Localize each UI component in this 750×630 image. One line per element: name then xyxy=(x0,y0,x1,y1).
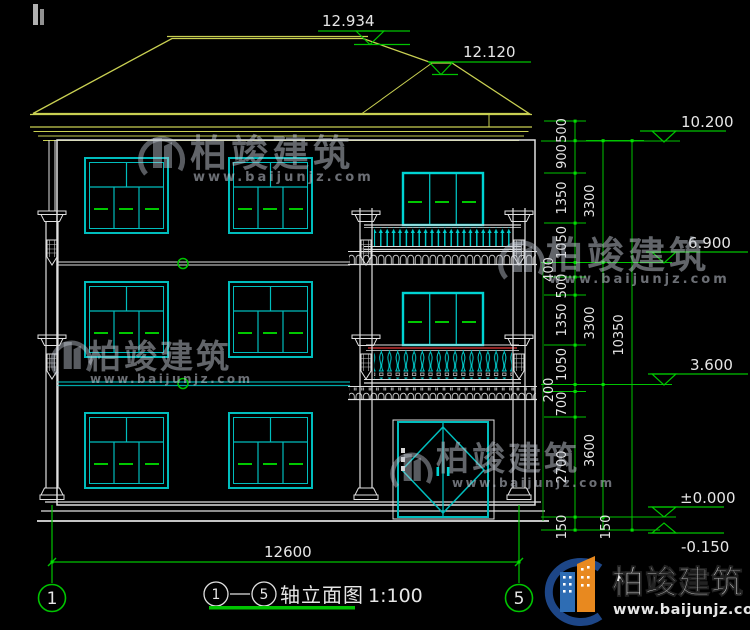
elevation-marker-eave xyxy=(640,131,726,142)
title-scale: 1:100 xyxy=(368,585,423,607)
segment-dim-label: 500 xyxy=(555,118,570,143)
axis-bubble-label: 5 xyxy=(514,589,525,609)
cornice-dentils xyxy=(349,253,536,265)
elevation-label: 12.934 xyxy=(322,12,375,30)
footer-logo: 柏竣建筑 www.baijunjz.com xyxy=(549,556,750,622)
footer-brand: 柏竣建筑 xyxy=(612,563,744,601)
watermark-url: www.baijunjz.com xyxy=(549,272,730,287)
elevation-label: -0.150 xyxy=(681,538,729,556)
segment-dim-label: 700 xyxy=(555,392,570,417)
window xyxy=(85,158,168,233)
title-axis-start: 1 xyxy=(212,587,221,603)
elevation-marker-ground xyxy=(648,507,724,517)
watermark-brand: 柏竣建筑 xyxy=(546,234,710,277)
overall-width-label: 12600 xyxy=(264,543,312,561)
drawing-title: 1 5 轴立面图 1:100 xyxy=(204,582,423,610)
axis-marker-circle xyxy=(178,259,188,269)
elevation-marker-base xyxy=(648,523,724,533)
elevation-marker-ridge-main xyxy=(318,31,410,45)
watermark-fragment-icon xyxy=(33,4,44,25)
roof-hip-line xyxy=(362,63,432,114)
balcony-second-floor xyxy=(348,293,537,400)
roof xyxy=(30,37,532,141)
balcony-vase-balusters xyxy=(374,350,512,379)
balcony-balusters xyxy=(374,228,512,247)
watermark-brand: 柏竣建筑 xyxy=(436,439,580,478)
span-dim-label: 3600 xyxy=(583,434,598,467)
balcony-sliding-door xyxy=(403,173,483,225)
watermark: 柏竣建筑 www.baijunjz.com xyxy=(53,337,253,386)
segment-dim-label: 1350 xyxy=(555,181,570,214)
window xyxy=(229,282,312,357)
title-axis-end: 5 xyxy=(260,587,269,603)
footer-url: www.baijunjz.com xyxy=(613,602,750,618)
door-hinge xyxy=(401,448,405,453)
pilaster-left xyxy=(38,140,66,500)
watermark-brand: 柏竣建筑 xyxy=(190,132,354,175)
total-dim-label: 10350 xyxy=(612,314,627,355)
segment-dim-label: 150 xyxy=(555,515,570,540)
watermark-url: www.baijunjz.com xyxy=(452,476,615,490)
elevation-label: 10.200 xyxy=(681,113,734,131)
window xyxy=(229,413,312,488)
watermark: 柏竣建筑 www.baijunjz.com xyxy=(393,439,615,490)
elevation-label: 3.600 xyxy=(690,356,733,374)
title-underline xyxy=(209,606,355,610)
elevation-marker-second xyxy=(648,374,748,385)
logo-building-orange xyxy=(577,556,595,612)
watermark-url: www.baijunjz.com xyxy=(193,170,374,185)
elevation-marker-ridge-wing xyxy=(428,62,531,75)
elevation-label: 12.120 xyxy=(463,43,516,61)
elevation-label: ±0.000 xyxy=(680,489,736,507)
watermark-brand: 柏竣建筑 xyxy=(88,337,232,376)
logo-building-blue xyxy=(560,572,575,612)
title-text: 轴立面图 xyxy=(280,583,364,607)
span-dim-label: 3300 xyxy=(583,184,598,217)
balcony-sliding-door xyxy=(403,293,483,345)
segment-dim-label: 1350 xyxy=(555,303,570,336)
balcony-third-floor xyxy=(348,173,537,265)
elevation-drawing: 500 900 1350 1050 400 500 1350 1050 200 … xyxy=(0,0,750,630)
cornice-dentils xyxy=(349,388,536,400)
windows xyxy=(85,158,312,488)
watermark-url: www.baijunjz.com xyxy=(90,372,253,386)
span-dim-label: 3300 xyxy=(583,306,598,339)
span-dim-label: 150 xyxy=(599,515,614,540)
window xyxy=(85,413,168,488)
axis-bubble-label: 1 xyxy=(47,589,58,609)
segment-dim-label: 900 xyxy=(555,144,570,169)
segment-dim-label: 1050 xyxy=(555,348,570,381)
